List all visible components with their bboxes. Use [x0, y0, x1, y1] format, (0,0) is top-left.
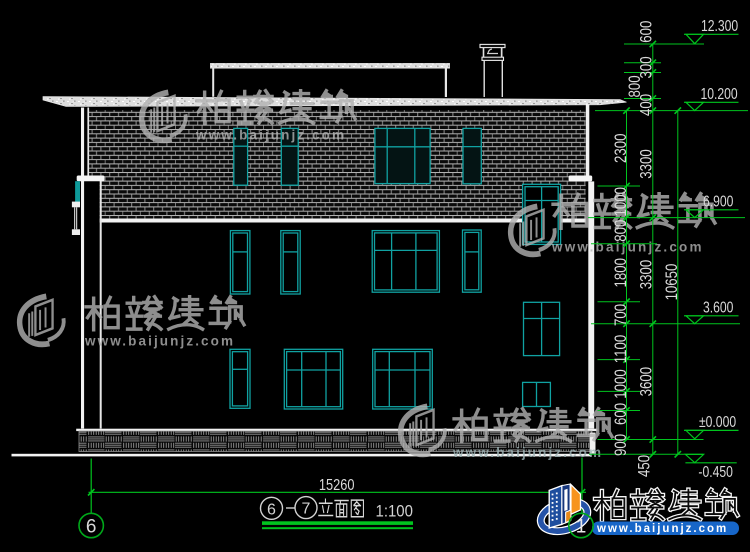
svg-text:1: 1: [576, 517, 587, 538]
svg-text:10650: 10650: [663, 264, 682, 301]
svg-text:3.600: 3.600: [703, 299, 734, 317]
svg-text:www.baijunjz.com: www.baijunjz.com: [195, 128, 346, 143]
svg-text:3300: 3300: [637, 260, 656, 289]
svg-text:3300: 3300: [637, 149, 656, 178]
svg-text:600: 600: [612, 403, 631, 425]
svg-text:www.baijunjz.com: www.baijunjz.com: [84, 334, 235, 349]
svg-text:600: 600: [637, 21, 656, 43]
svg-text:700: 700: [612, 304, 631, 326]
svg-text:800: 800: [612, 220, 631, 242]
svg-text:www.baijunjz.com: www.baijunjz.com: [596, 523, 728, 535]
svg-text:3600: 3600: [637, 367, 656, 396]
svg-text:www.baijunjz.com: www.baijunjz.com: [452, 445, 603, 460]
svg-text:1800: 1800: [612, 258, 631, 287]
svg-text:1100: 1100: [612, 335, 631, 363]
svg-text:10.200: 10.200: [701, 85, 738, 103]
svg-text:-0.450: -0.450: [698, 463, 733, 481]
svg-text:15260: 15260: [319, 477, 355, 495]
svg-text:7: 7: [302, 501, 311, 518]
svg-text:±0.000: ±0.000: [699, 413, 736, 431]
svg-text:900: 900: [612, 434, 631, 456]
svg-text:400: 400: [637, 94, 656, 116]
svg-text:2300: 2300: [612, 134, 631, 163]
svg-text:6: 6: [267, 501, 276, 518]
svg-text:300: 300: [637, 56, 656, 78]
svg-text:1:100: 1:100: [376, 503, 414, 521]
svg-text:450: 450: [635, 455, 654, 477]
svg-text:6: 6: [86, 517, 97, 538]
svg-text:1000: 1000: [612, 187, 631, 216]
svg-text:6.900: 6.900: [703, 193, 734, 211]
svg-text:12.300: 12.300: [701, 17, 738, 35]
svg-text:1000: 1000: [612, 369, 631, 398]
